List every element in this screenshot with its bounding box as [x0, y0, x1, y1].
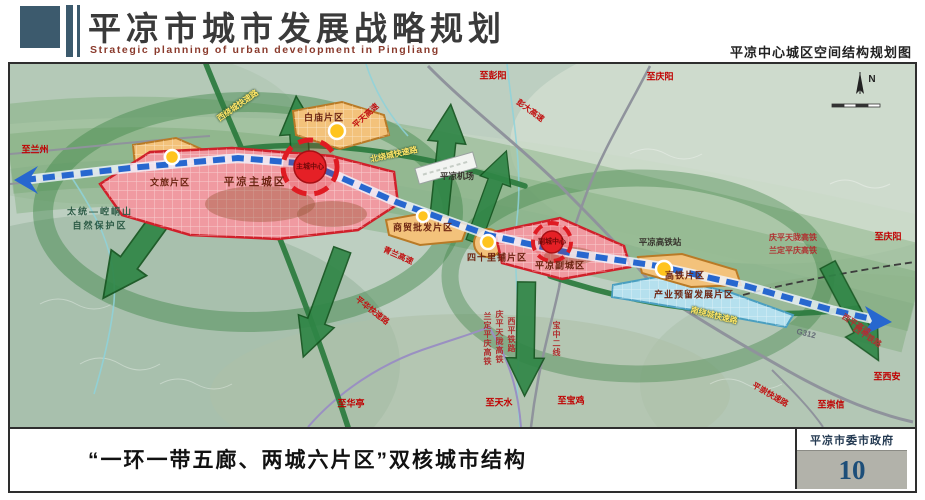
rail-label-xiping-east: 西平铁路 [851, 325, 882, 349]
road-label-pingchong-expwy: 平崇快速路 [751, 382, 790, 409]
dest-label-pengyang: 至彭阳 [479, 72, 506, 81]
zone-label-main-city: 平凉主城区 [224, 177, 287, 188]
page-header: 平凉市城市发展战略规划 Strategic planning of urban … [0, 0, 925, 62]
content-frame: 平凉主城区平凉副城区白庙片区文旅片区商贸批发片区四十里铺片区高铁片区产业预留发展… [8, 62, 917, 493]
map-title: 平凉中心城区空间结构规划图 [730, 42, 912, 61]
page-subtitle-en: Strategic planning of urban development … [90, 44, 440, 56]
dest-label-lanzhou: 至兰州 [21, 146, 48, 155]
dest-label-huating: 至华亭 [337, 400, 364, 409]
dest-label-tianshui: 至天水 [485, 399, 512, 408]
zone-label-sub-city: 平凉副城区 [535, 262, 585, 271]
publisher-box: 平凉市委市政府 10 [795, 429, 907, 489]
title-divider-bar-thick [66, 5, 73, 57]
planning-map: 平凉主城区平凉副城区白庙片区文旅片区商贸批发片区四十里铺片区高铁片区产业预留发展… [10, 64, 915, 429]
zone-label-wenlv: 文旅片区 [150, 179, 190, 188]
zone-label-baimiao: 白庙片区 [304, 114, 344, 123]
road-label-south-ring: 南绕城快速路 [690, 306, 739, 325]
core-label-sub: 副城中心 [538, 239, 566, 246]
road-label-west-ring: 西绕城快速路 [216, 89, 260, 123]
road-label-north-ring: 北绕城快速路 [370, 146, 419, 164]
zone-label-gaotie: 高铁片区 [665, 272, 705, 281]
title-divider-bar-thin [77, 5, 80, 57]
page-title: 平凉市城市发展战略规划 [88, 2, 506, 50]
reserve-label-line2: 自然保护区 [72, 222, 127, 231]
rail-label-baozhong: 宝中二线 [552, 321, 560, 357]
rail-label-qingping-v: 庆平天陇高铁 [495, 310, 503, 364]
publisher-name: 平凉市委市政府 [797, 429, 907, 451]
road-label-pinghua-expwy: 平华快速路 [354, 296, 390, 327]
logo-square [20, 6, 60, 48]
poi-label-airport: 平凉机场 [440, 172, 474, 181]
poi-label-hsr-station: 平凉高铁站 [639, 238, 682, 247]
dest-label-chongxin: 至崇信 [817, 401, 844, 410]
caption-bar: “一环一带五廊、两城六片区”双核城市结构 平凉市委市政府 10 [10, 429, 915, 489]
structure-caption: “一环一带五廊、两城六片区”双核城市结构 [88, 444, 527, 474]
road-label-xiping-expwy: 西平高速 [840, 313, 871, 337]
map-labels-layer: 平凉主城区平凉副城区白庙片区文旅片区商贸批发片区四十里铺片区高铁片区产业预留发展… [10, 64, 915, 427]
zone-label-shangmao: 商贸批发片区 [393, 224, 453, 233]
dest-label-qingyang-east: 至庆阳 [874, 233, 901, 242]
road-label-pengda-expwy: 彭大高速 [515, 98, 546, 123]
rail-label-qingping-hsr: 庆平天陇高铁 [769, 234, 817, 242]
rail-label-landing-v: 兰定平庆高铁 [483, 312, 491, 366]
rail-label-xiping-v: 西平铁路 [507, 317, 515, 353]
dest-label-xian: 至西安 [873, 373, 900, 382]
zone-label-industry-reserve: 产业预留发展片区 [654, 291, 734, 300]
dest-label-baoji: 至宝鸡 [557, 397, 584, 406]
compass-n-label: N [868, 75, 875, 85]
road-label-qinglan-expwy: 青兰高速 [382, 246, 414, 266]
reserve-label-line1: 太统—崆峒山 [67, 208, 133, 217]
road-label-pingtian-expwy: 平天高速 [351, 102, 380, 129]
road-label-g312: G312 [796, 328, 817, 340]
page-number: 10 [797, 451, 907, 489]
zone-label-sishilipu: 四十里铺片区 [467, 254, 527, 263]
core-label-main: 主城中心 [296, 164, 324, 171]
rail-label-landing-hsr: 兰定平庆高铁 [769, 247, 817, 255]
dest-label-qingyang-north: 至庆阳 [646, 73, 673, 82]
